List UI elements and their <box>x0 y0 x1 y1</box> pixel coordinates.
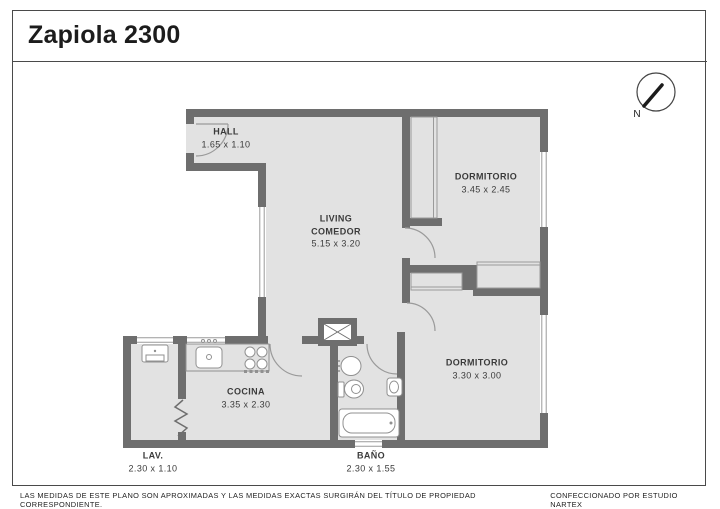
footer-disclaimer: LAS MEDIDAS DE ESTE PLANO SON APROXIMADA… <box>20 491 550 509</box>
room-dims: 5.15 x 3.20 <box>311 237 361 250</box>
room-label-cocina: COCINA 3.35 x 2.30 <box>222 386 271 411</box>
room-name: HALL <box>202 126 251 139</box>
room-dims: 1.65 x 1.10 <box>202 138 251 151</box>
bathtub-icon <box>339 409 399 437</box>
room-name: COCINA <box>222 386 271 399</box>
room-label-lav: LAV. 2.30 x 1.10 <box>129 450 178 475</box>
footer: LAS MEDIDAS DE ESTE PLANO SON APROXIMADA… <box>20 491 709 509</box>
room-name: DORMITORIO <box>446 357 508 370</box>
room-name-line2: COMEDOR <box>311 225 361 238</box>
room-label-dormitorio-1: DORMITORIO 3.45 x 2.45 <box>455 171 517 196</box>
toilet-icon <box>338 380 364 398</box>
duct-icon <box>324 324 351 340</box>
room-label-living: LIVING COMEDOR 5.15 x 3.20 <box>311 212 361 250</box>
room-dims: 3.35 x 2.30 <box>222 398 271 411</box>
room-dims: 3.30 x 3.00 <box>446 369 508 382</box>
room-name: LIVING <box>311 212 361 225</box>
room-label-dormitorio-2: DORMITORIO 3.30 x 3.00 <box>446 357 508 382</box>
compass-icon: N <box>633 73 675 120</box>
washer-icon <box>142 345 168 362</box>
room-label-bano: BAÑO 2.30 x 1.55 <box>347 450 396 475</box>
floor-plan-page: { "title": "Zapiola 2300", "compass": { … <box>0 0 720 509</box>
room-dims: 3.45 x 2.45 <box>455 183 517 196</box>
washbasin-icon <box>387 378 402 396</box>
room-label-hall: HALL 1.65 x 1.10 <box>202 126 251 151</box>
room-dims: 2.30 x 1.10 <box>129 462 178 475</box>
room-name: BAÑO <box>347 450 396 463</box>
room-name: DORMITORIO <box>455 171 517 184</box>
footer-credit: CONFECCIONADO POR ESTUDIO NARTEX <box>550 491 709 509</box>
room-name: LAV. <box>129 450 178 463</box>
floor-plan-drawing: N <box>0 0 720 509</box>
room-dims: 2.30 x 1.55 <box>347 462 396 475</box>
compass-north-label: N <box>633 109 640 120</box>
